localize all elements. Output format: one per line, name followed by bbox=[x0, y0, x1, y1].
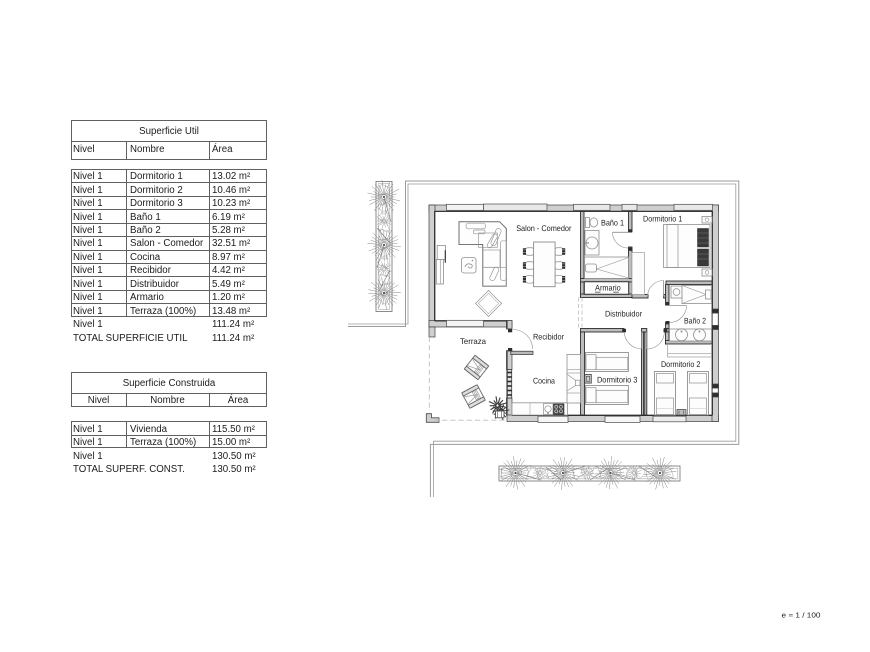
svg-text:Dormitorio 3: Dormitorio 3 bbox=[597, 376, 638, 385]
svg-text:e = 1 / 100: e = 1 / 100 bbox=[782, 611, 821, 620]
svg-text:Baño 2: Baño 2 bbox=[684, 316, 706, 325]
svg-text:Dormitorio 2: Dormitorio 2 bbox=[661, 360, 701, 369]
svg-text:Armario: Armario bbox=[595, 283, 621, 292]
svg-text:Terraza: Terraza bbox=[460, 337, 486, 346]
svg-text:Distribuidor: Distribuidor bbox=[605, 309, 642, 318]
svg-text:Cocina: Cocina bbox=[533, 376, 555, 385]
svg-text:Baño 1: Baño 1 bbox=[601, 218, 624, 227]
svg-text:Recibidor: Recibidor bbox=[533, 332, 564, 341]
svg-text:Salon - Comedor: Salon - Comedor bbox=[516, 224, 571, 233]
svg-text:Dormitorio 1: Dormitorio 1 bbox=[643, 214, 683, 223]
